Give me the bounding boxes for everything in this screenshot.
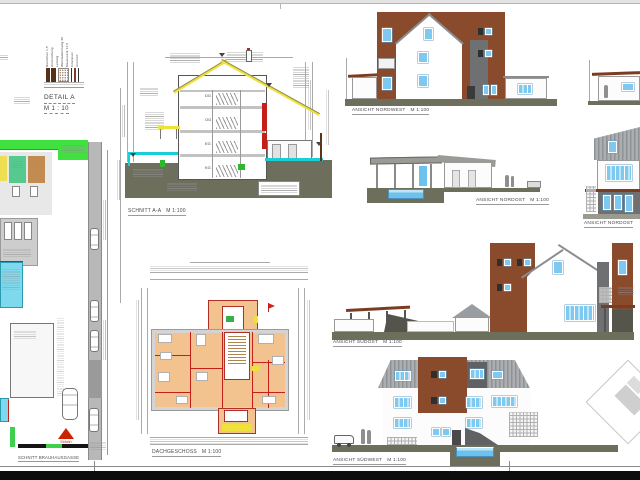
plan-yellow-1 [254,316,258,323]
sheet-top-line [0,3,640,4]
detail-layer-label: Innenputz [71,23,74,67]
so-midhouse-wall [455,317,489,332]
plan-prot-bottom-room [224,410,248,422]
sw-roof-win-2 [470,369,484,379]
so-win-b1 [504,259,511,266]
margin-note-top-left [14,97,30,104]
caption-dachgeschoss: DACHGESCHOSSM 1:100 [152,450,221,457]
sw-mid-win-2 [466,397,482,408]
plan-green-unit [226,316,234,322]
nw-win-1 [382,28,392,42]
plan-dim-bottom-text [150,439,308,444]
plan-dim-left-2 [147,288,148,434]
plan-north-flag [268,303,275,309]
nw-balcony [378,58,395,69]
site-dim-line-right [107,150,108,455]
sec-slab-1 [180,106,265,109]
nw-win-6 [485,50,492,57]
detail-layer-label: Lattung [56,23,59,67]
so-dark-wall [612,310,633,332]
sec-brown-line [320,133,322,161]
sw-mid-win-dark [431,397,437,404]
detail-line-2 [74,68,76,82]
site-car-1 [90,228,99,250]
detail-layer-label: Anstrich [76,23,79,67]
fold-tick-bottom-left [94,461,95,471]
nw-win-7 [483,85,489,95]
fr-window-band [606,165,632,181]
plan-dim-protrusion [190,262,270,263]
detail-dim-line [44,87,84,88]
detail-layer-label: Wärmedämmung 60 [61,23,64,67]
sec-slab-2 [180,130,265,133]
sec-chimney [246,50,252,62]
caption-scale: M 1:100 [202,449,221,455]
caption-ansicht-nordwest: ANSICHT NORDWESTM 1:100 [352,109,429,115]
einfahrt-label: Einfahrt [52,441,80,444]
sec-annex-door-2 [288,144,297,159]
np-person-1 [505,175,509,187]
sw-car-wheel-2 [347,443,351,447]
sw-roof-win-1 [395,371,411,381]
plan-dim-bottom-1 [150,437,308,438]
plan-stairs [228,334,246,364]
fr-lower-win-1 [603,195,611,210]
sec-note-bottom-2 [167,182,197,191]
so-low-wall [334,319,374,332]
sw-low-win-1 [394,418,411,428]
fr-skylight [608,141,617,153]
so-midhouse-roof [452,304,492,318]
plan-dim-top-text [150,266,308,271]
so-p2-post-1 [604,308,606,332]
site-parcel-tan-text [31,161,42,168]
plan-dim-right-text [307,300,311,420]
site-green-text [61,144,85,153]
scale-bar-green [46,444,62,448]
np-door-1 [452,170,460,188]
caption-scale: M 1:100 [166,208,185,214]
site-dim-col [57,318,64,396]
sec-canopy-post-2 [176,129,177,139]
plan-dim-left-1 [141,288,142,434]
nw-win-4 [418,75,428,87]
plan-furn-6 [158,372,170,382]
sheet-bottom-line [0,466,640,467]
fr-railing [586,186,596,212]
sw-pool [456,447,494,457]
nw-win-8 [491,85,497,95]
site-garage-slot-2 [14,222,22,240]
sec-label-left-rot [122,105,125,137]
sw-trellis [509,412,538,437]
detail-line-3 [78,68,79,82]
plan-north-line [268,303,269,312]
fr-roof [594,127,640,160]
detail-bar-1 [46,68,50,82]
sw-center-win-1 [432,428,440,436]
site-road-edge-right [101,142,102,460]
detail-a-title: DETAIL A [44,95,75,104]
site-existing-text [3,248,31,257]
nw-win-dark-2 [478,50,483,57]
plan-furn-2 [160,352,172,360]
plan-furn-4 [258,334,274,344]
scale-bar-note [90,441,106,450]
so-win-d2 [517,259,522,266]
plan-sheet: Riemchen 1,5 Hinterlüftung Lattung Wärme… [0,0,640,480]
site-bin-1 [12,186,20,197]
plan-furn-3 [196,334,206,346]
sec-chimney-mark [247,48,250,50]
fold-tick-bottom-right [509,461,510,471]
sw-roof-win-blue [439,371,446,378]
caption-text: ANSICHT NORDOST [584,221,633,226]
floor-label-dg: DG [205,94,211,98]
site-dim2-text [117,160,120,200]
nw-door [467,86,475,99]
site-dim-text-right-1 [103,200,106,240]
sw-roof-win-3 [492,371,503,379]
so-low-band [407,321,454,332]
plan-dim-right-2 [304,288,305,434]
plan-furn-5 [272,356,284,365]
sec-annex-door-1 [272,144,281,159]
nw-win-3 [418,52,428,63]
caption-schnitt-aa: SCHNITT A-AM 1:100 [128,209,186,216]
so-note [618,286,634,295]
sec-stair-2 [216,117,238,129]
plan-furn-9 [176,396,188,404]
sec-green-2 [160,160,165,167]
site-red-line [8,400,9,422]
plan-wall-h4 [252,392,285,393]
detail-insulation [58,68,69,82]
sec-cyan-right [265,158,323,161]
site-car-2 [90,300,99,322]
site-dim-line-2 [120,88,121,303]
sw-mid-win-1 [394,397,411,408]
np-col-4 [430,164,432,188]
caption-ansicht-nordost-pool: ANSICHT NORDOSTM 1:100 [476,199,549,205]
bottom-black-bar [0,471,640,480]
caption-text: ANSICHT NORDWEST [352,108,405,113]
sec-stair-3 [216,141,238,153]
detail-bar-2 [51,68,56,82]
sec-level-3 [130,153,136,157]
site-car-4 [89,408,99,432]
detail-dim-text [44,81,84,85]
sec-canopy-post-1 [160,129,161,139]
sec-stair-4 [216,165,238,177]
nw-win-dark-1 [478,28,483,35]
sec-dim-far-right [326,90,329,145]
site-car-3 [90,330,99,352]
sw-door [452,430,461,445]
caption-text: SCHNITT BRAUHAUSGASSE [18,455,79,460]
site-cyan-text [2,268,20,290]
caption-scale: M 1:100 [387,458,406,463]
caption-scale: M 1:100 [530,198,549,203]
plan-dim-left-text [136,300,140,420]
caption-text: ANSICHT SÜDOST [333,340,378,345]
site-red-edge [0,261,23,262]
site-green-vertical [10,427,15,447]
so-pergola-beam [346,306,410,312]
plan-dim-top-2 [150,279,308,280]
nw-win-2 [382,77,392,90]
site-main-text [14,330,36,339]
detail-line-1 [71,68,72,82]
caption-ansicht-nordost-side: ANSICHT NORDOST [584,222,633,228]
site-parcel-yellow [0,156,7,181]
np-pool [388,189,424,199]
caption-text: ANSICHT SÜDWEST [333,458,382,463]
nw-ground [345,99,557,106]
so-big-window [565,305,595,321]
np-door-2 [468,170,476,188]
sec-level-1 [219,53,225,57]
floor-label-og: OG [205,118,211,122]
sec-red-wall-1 [262,103,267,131]
site-drive-car [62,388,78,420]
site-bin-2 [30,186,38,197]
nw-dim-left [346,58,347,103]
nw-garage-window [518,84,532,94]
site-parcel-teal-text [12,161,23,168]
plan-furn-1 [158,334,172,343]
sw-mid-win-blue [439,397,446,404]
sec-slab-3 [180,154,265,157]
sec-note-left-1 [140,88,158,96]
floor-label-eg: EG [205,142,211,146]
sw-car-wheel-1 [337,443,341,447]
np-col-2 [394,164,396,188]
sec-dim-right-text [308,80,311,130]
sw-mid-win-3 [492,396,517,407]
plan-wall-h2 [190,368,223,369]
sec-green-1 [238,164,245,170]
caption-text: SCHNITT A-A [128,208,161,214]
caption-site-section: SCHNITT BRAUHAUSGASSE [18,456,79,462]
fr-lower-win-3 [625,195,633,212]
plan-dim-right-1 [298,288,299,434]
plan-furn-8 [262,396,276,404]
detail-layer-label: Hinterlüftung [51,23,54,67]
scale-bar-black-1 [18,444,46,448]
sec-red-wall-2 [262,133,267,149]
sw-center-win-2 [442,428,450,436]
site-garage-slot-3 [24,222,32,240]
sw-tower [418,357,467,413]
sw-person-1 [361,429,365,444]
caption-text: DACHGESCHOSS [152,449,197,455]
plan-yellow-band [222,424,252,431]
plan-wall-h5 [155,392,191,393]
fr-ground [583,214,640,219]
detail-a-scale: M 1 : 10 [44,106,69,114]
caption-ansicht-suedwest: ANSICHT SÜDWESTM 1:100 [333,459,406,465]
caption-ansicht-suedost: ANSICHT SÜDOSTM 1:100 [333,341,402,347]
fr-person [604,85,608,98]
so-gable-window [553,261,563,274]
so-win-d1 [497,259,502,266]
sec-level-2 [266,83,272,87]
sec-dim-left-1 [127,62,128,162]
so-right-wing [612,243,633,311]
sw-person-2 [367,430,371,444]
sec-dim-left-2 [133,62,134,162]
site-road-block [88,360,102,398]
site-einfahrt-triangle [58,428,74,439]
nw-left-building [352,77,377,99]
np-bench [527,181,541,188]
plan-wall-v2 [222,332,223,408]
fold-tick-top [280,3,281,9]
nw-win-gable [424,28,433,40]
np-ground-right [444,188,540,192]
margin-note-edge [0,55,8,60]
plan-dim-bottom-2 [150,444,308,445]
so-ground [332,332,634,340]
np-person-2 [511,176,514,187]
sec-note-box-text [261,184,297,193]
fr-dim [589,60,590,104]
plan-wall-v1 [190,332,191,408]
scale-bar-black-2 [62,444,88,448]
caption-text: ANSICHT NORDOST [476,198,525,203]
floor-label-kg: KG [205,166,211,170]
so-win-b2 [524,259,531,266]
sec-slab-attic [180,90,265,92]
site-garage-slot-1 [4,222,12,240]
sw-low-win-2 [466,418,482,428]
site-dim-text-right-2 [103,320,106,360]
sw-fence [387,437,417,445]
so-win-b3 [504,284,511,291]
sec-note-bottom-left [133,169,163,177]
nw-win-5 [485,28,492,35]
sec-level-4 [316,142,322,146]
fr-top-window [622,83,634,91]
np-water-column [419,166,427,186]
detail-layer-label: Mauerwerk 11,5 [66,23,69,67]
caption-scale: M 1:100 [383,340,402,345]
fr-lower-win-2 [614,195,622,210]
plan-yellow-2 [252,366,260,371]
np-col-1 [376,164,378,188]
so-right-window [618,260,627,275]
plan-dim-top-1 [150,272,308,273]
detail-layer-label: Riemchen 1,5 [46,23,49,67]
fr-top-ground [588,101,640,105]
so-win-d3 [497,284,502,291]
sec-note-right-1 [293,66,309,88]
np-col-3 [412,164,414,188]
sec-core-wall-1 [212,90,213,178]
plan-furn-7 [196,372,208,381]
sw-roof-win-dark [431,371,437,378]
sec-dim-top [165,57,293,58]
sec-stair-1 [216,93,238,105]
caption-scale: M 1:100 [410,108,429,113]
